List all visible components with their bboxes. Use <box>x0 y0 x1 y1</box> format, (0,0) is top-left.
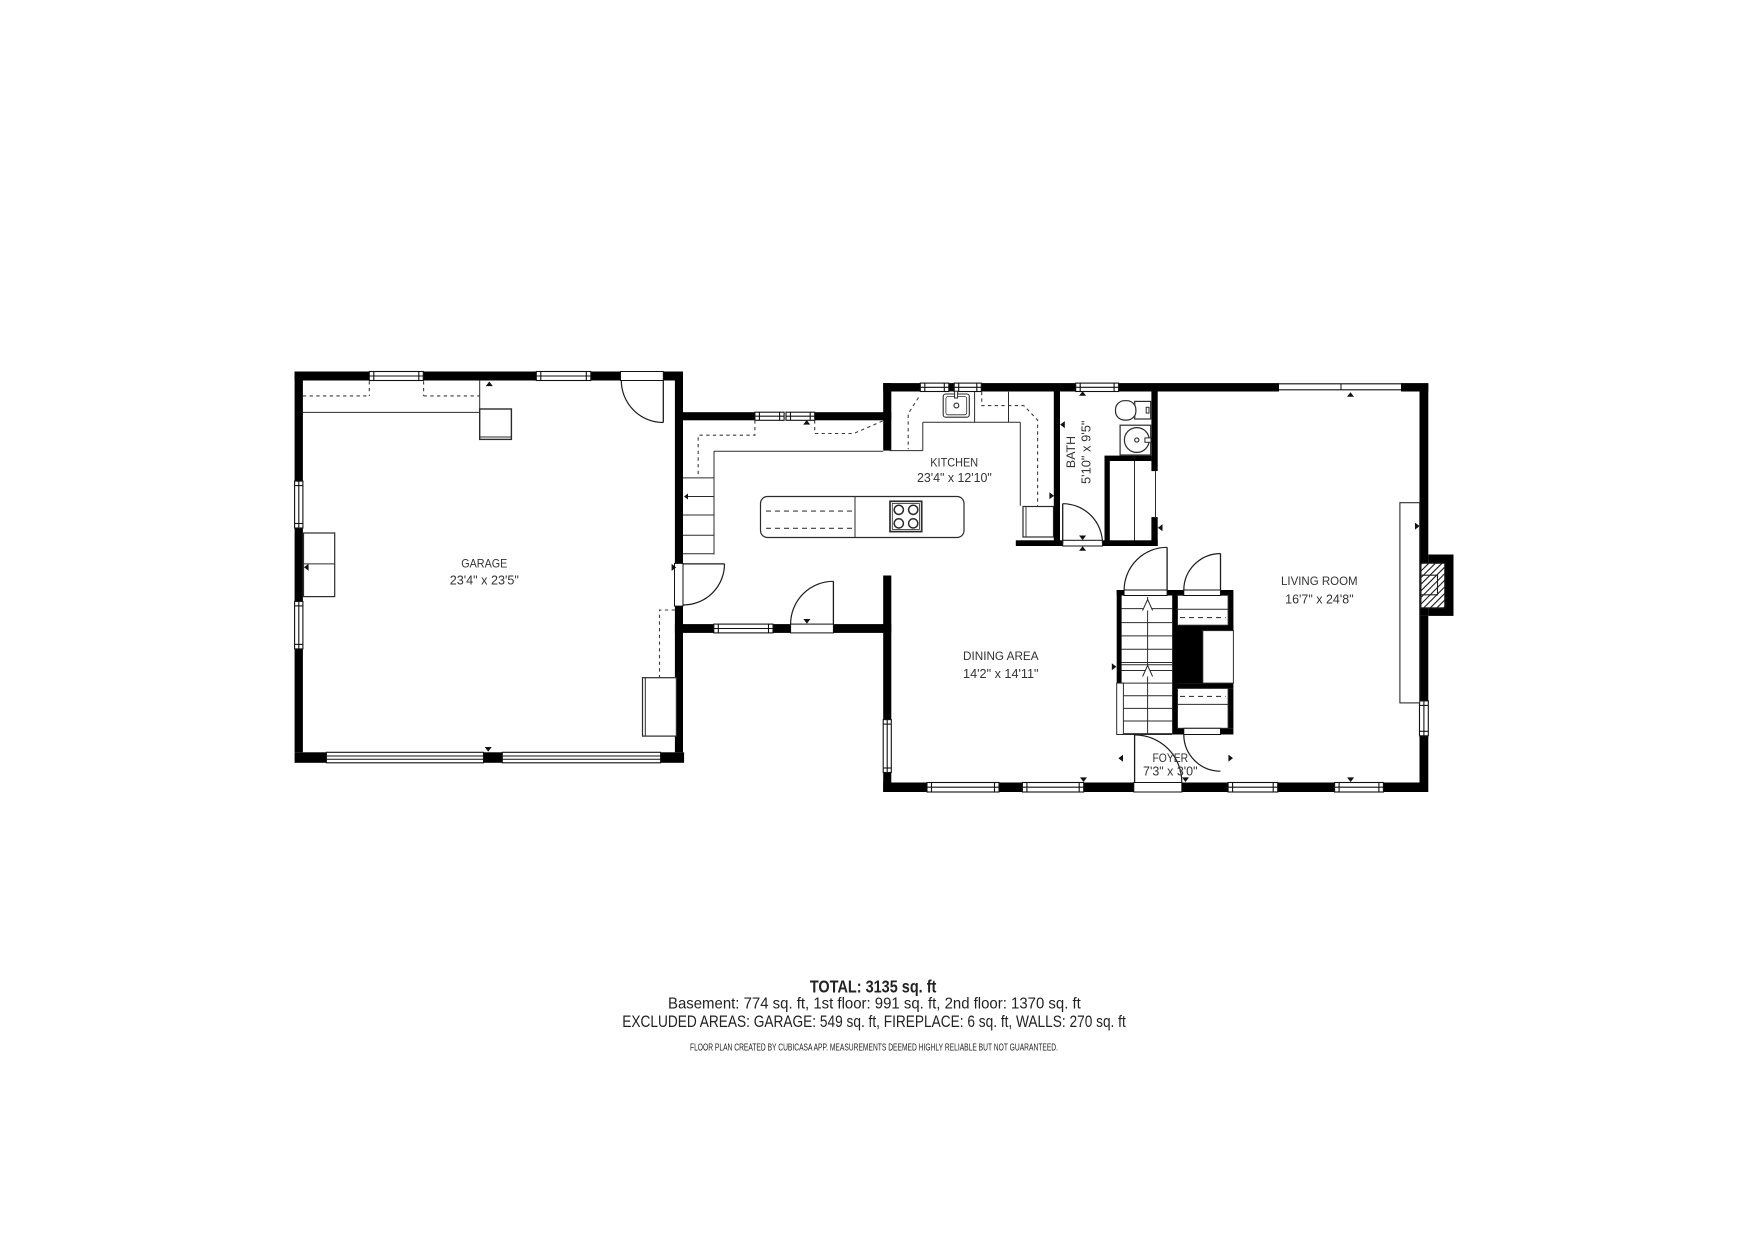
svg-text:14'2" x 14'11": 14'2" x 14'11" <box>963 666 1039 681</box>
svg-text:23'4" x 23'5": 23'4" x 23'5" <box>450 572 520 587</box>
svg-text:5'10" x 9'5": 5'10" x 9'5" <box>1079 420 1094 484</box>
svg-text:DINING AREA: DINING AREA <box>963 649 1039 663</box>
svg-text:7'3" x 3'0": 7'3" x 3'0" <box>1143 764 1198 779</box>
svg-text:EXCLUDED AREAS: GARAGE: 549 sq: EXCLUDED AREAS: GARAGE: 549 sq. ft, FIRE… <box>622 1013 1126 1031</box>
svg-text:BATH: BATH <box>1064 436 1078 468</box>
svg-text:LIVING ROOM: LIVING ROOM <box>1281 574 1358 588</box>
svg-text:GARAGE: GARAGE <box>461 557 507 571</box>
svg-text:23'4" x 12'10": 23'4" x 12'10" <box>917 470 992 485</box>
svg-text:Basement: 774 sq. ft, 1st floo: Basement: 774 sq. ft, 1st floor: 991 sq.… <box>668 996 1081 1013</box>
svg-text:16'7" x 24'8": 16'7" x 24'8" <box>1285 592 1354 607</box>
svg-text:TOTAL: 3135 sq. ft: TOTAL: 3135 sq. ft <box>810 976 937 996</box>
svg-text:FLOOR PLAN CREATED BY CUBICASA: FLOOR PLAN CREATED BY CUBICASA APP. MEAS… <box>690 1043 1058 1054</box>
svg-text:KITCHEN: KITCHEN <box>930 455 978 469</box>
